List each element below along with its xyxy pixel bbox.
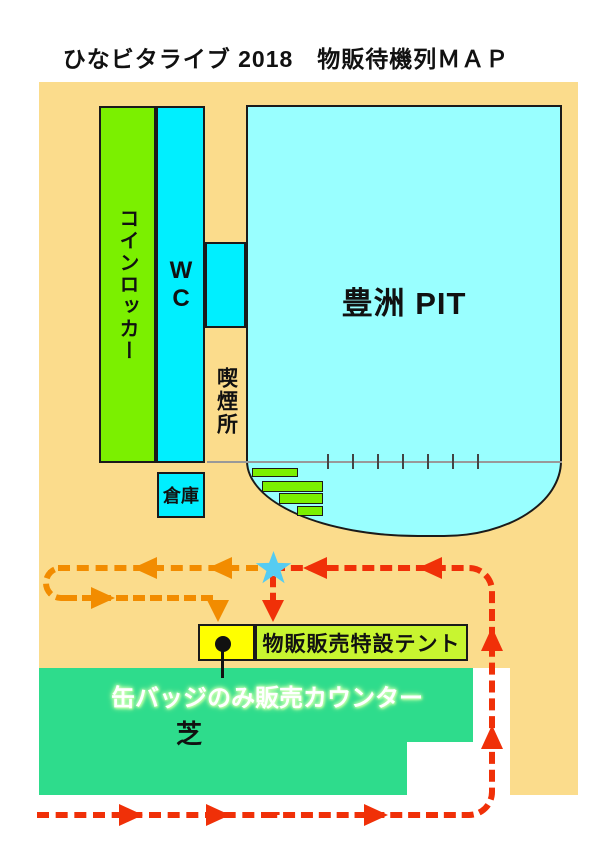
venue-map-canvas: ひなビタライブ 2018 物販待機列ＭＡＰ コインロッカー WC 喫煙所 倉庫 …: [0, 0, 613, 860]
front-line-tick: [427, 454, 429, 469]
merch-queue-route-bottom: [37, 812, 273, 818]
coin-locker-building: コインロッカー: [99, 106, 156, 463]
smoking-area: 喫煙所: [205, 365, 246, 437]
warehouse-label: 倉庫: [163, 482, 199, 508]
lawn-label: 芝: [39, 714, 339, 751]
entrance-stair-bar: [262, 481, 323, 492]
front-line-tick: [477, 454, 479, 469]
red-arrow-left-icon: [303, 557, 327, 579]
badge-queue-route-bottom: [65, 595, 213, 601]
red-arrow-up-icon: [481, 627, 503, 651]
entrance-stair-bar: [297, 506, 323, 516]
entrance-stair-bar: [279, 493, 323, 504]
front-line-tick: [377, 454, 379, 469]
orange-arrow-down-icon: [207, 600, 229, 622]
orange-arrow-left-icon: [208, 557, 232, 579]
front-line-tick: [452, 454, 454, 469]
warehouse-building: 倉庫: [157, 472, 205, 518]
orange-arrow-left-icon: [133, 557, 157, 579]
red-arrow-right-icon: [206, 804, 230, 826]
badge-counter-callout-line: [221, 650, 224, 678]
badge-counter-label: 缶バッジのみ販売カウンター: [50, 678, 484, 713]
coin-locker-label: コインロッカー: [113, 208, 142, 362]
toilet-building: WC: [156, 106, 205, 463]
toilet-label: WC: [167, 257, 195, 313]
smoking-area-label: 喫煙所: [211, 367, 241, 436]
front-line-tick: [352, 454, 354, 469]
orange-arrow-right-icon: [91, 587, 115, 609]
entrance-stair-bar: [252, 468, 298, 477]
red-arrow-down-icon: [262, 600, 284, 622]
front-line-tick: [402, 454, 404, 469]
toilet-venue-connector: [205, 242, 246, 328]
merch-tent-label: 物販販売特設テント: [263, 628, 461, 658]
plaza-ground-right-strip: [510, 668, 578, 795]
red-arrow-left-icon: [418, 557, 442, 579]
page-title: ひなビタライブ 2018 物販待機列ＭＡＰ: [0, 40, 572, 74]
red-arrow-right-icon: [119, 804, 143, 826]
front-line-tick: [327, 454, 329, 469]
toyosu-pit-label: 豊洲 PIT: [246, 278, 562, 323]
merch-tent-box: 物販販売特設テント: [255, 624, 468, 661]
red-arrow-right-icon: [364, 804, 388, 826]
venue-front-line: [207, 461, 562, 463]
red-arrow-up-icon: [481, 725, 503, 749]
